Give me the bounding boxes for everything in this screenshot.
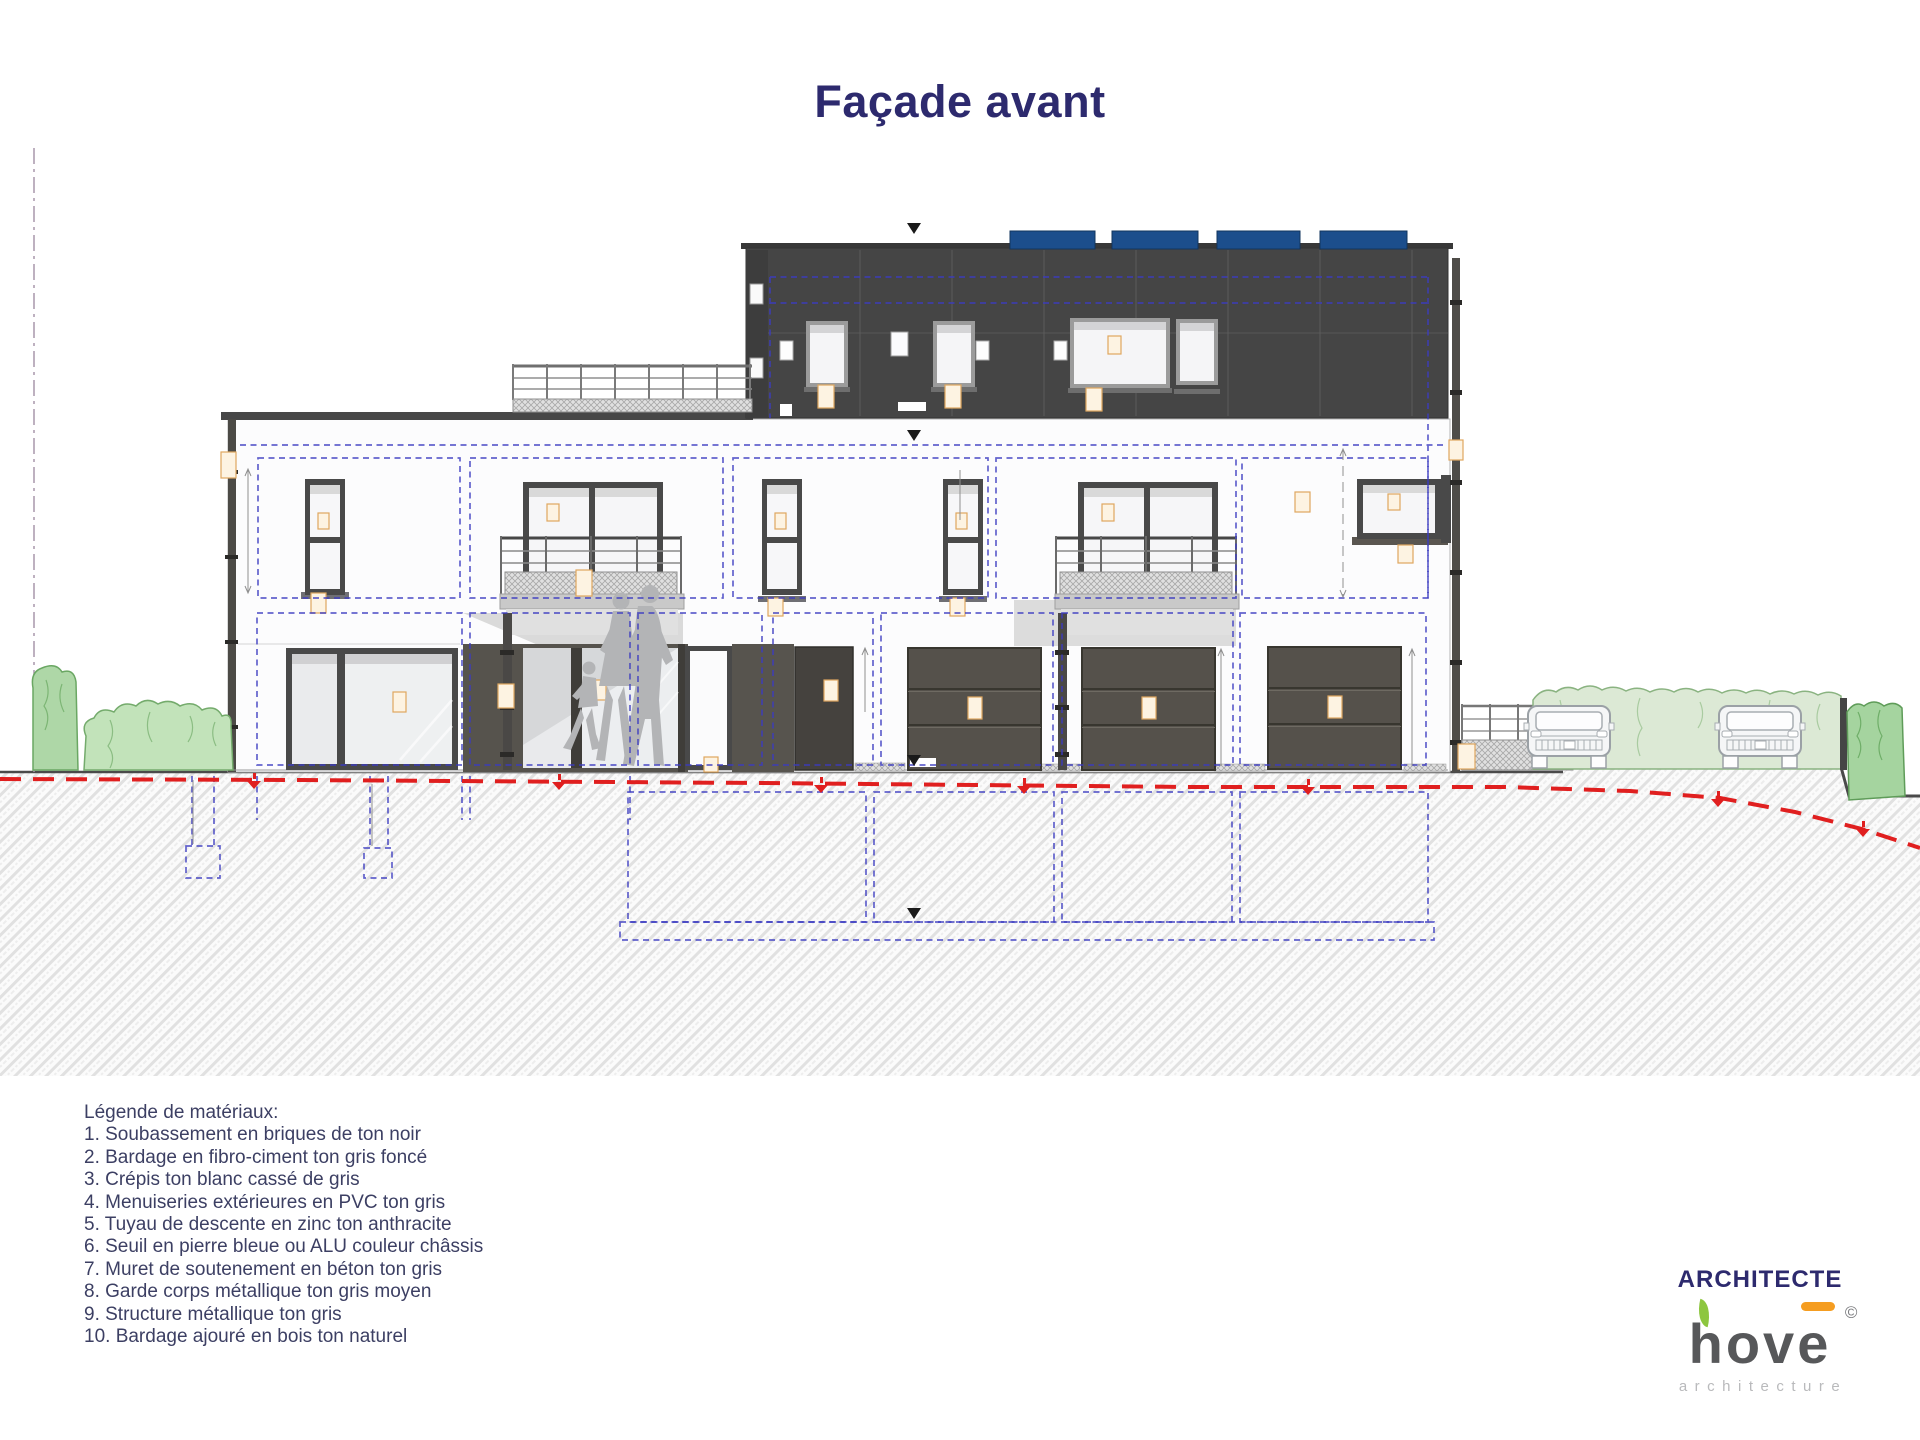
legend-item: 9. Structure métallique ton gris [84, 1304, 483, 1326]
legend-heading: Légende de matériaux: [84, 1102, 483, 1124]
legend-item: 4. Menuiseries extérieures en PVC ton gr… [84, 1192, 483, 1214]
bush-right [1847, 702, 1905, 800]
architect-label: ARCHITECTE [1642, 1266, 1878, 1294]
legend-item: 3. Crépis ton blanc cassé de gris [84, 1169, 483, 1191]
brand-subtitle: architecture [1642, 1378, 1878, 1395]
garage-door-2 [1082, 648, 1215, 770]
legend-item: 1. Soubassement en briques de ton noir [84, 1124, 483, 1146]
legend-item: 7. Muret de soutenement en béton ton gri… [84, 1259, 483, 1281]
legend-item: 6. Seuil en pierre bleue ou ALU couleur … [84, 1236, 483, 1258]
legend-item: 2. Bardage en fibro-ciment ton gris fonc… [84, 1147, 483, 1169]
vegetation-left [32, 666, 233, 770]
legend-item: 10. Bardage ajouré en bois ton naturel [84, 1326, 483, 1348]
entry-door-dark [795, 647, 853, 770]
hove-logo: hove © [1689, 1316, 1832, 1372]
roof-terrace-railing [513, 364, 752, 412]
materials-legend: Légende de matériaux: 1. Soubassement en… [84, 1102, 483, 1348]
architect-branding: ARCHITECTE hove © architecture [1642, 1266, 1878, 1395]
garage-door-3 [1268, 647, 1401, 769]
legend-item: 8. Garde corps métallique ton gris moyen [84, 1281, 483, 1303]
copyright-mark: © [1845, 1304, 1858, 1321]
entry-door-white [685, 646, 732, 772]
legend-item: 5. Tuyau de descente en zinc ton anthrac… [84, 1214, 483, 1236]
balcony-2 [1055, 482, 1239, 635]
storefront-window [286, 648, 458, 770]
page-title: Façade avant [0, 76, 1920, 128]
macron-accent [1801, 1302, 1835, 1311]
dark-wall-panel [732, 644, 794, 772]
facade-sheet: Façade avant Légende de matériaux: 1. So… [0, 0, 1920, 1440]
fence-post [1840, 698, 1847, 770]
brand-name-accent: e [1797, 1312, 1831, 1375]
top-floor-cladding [741, 243, 1453, 418]
garage-door-1 [908, 648, 1041, 770]
